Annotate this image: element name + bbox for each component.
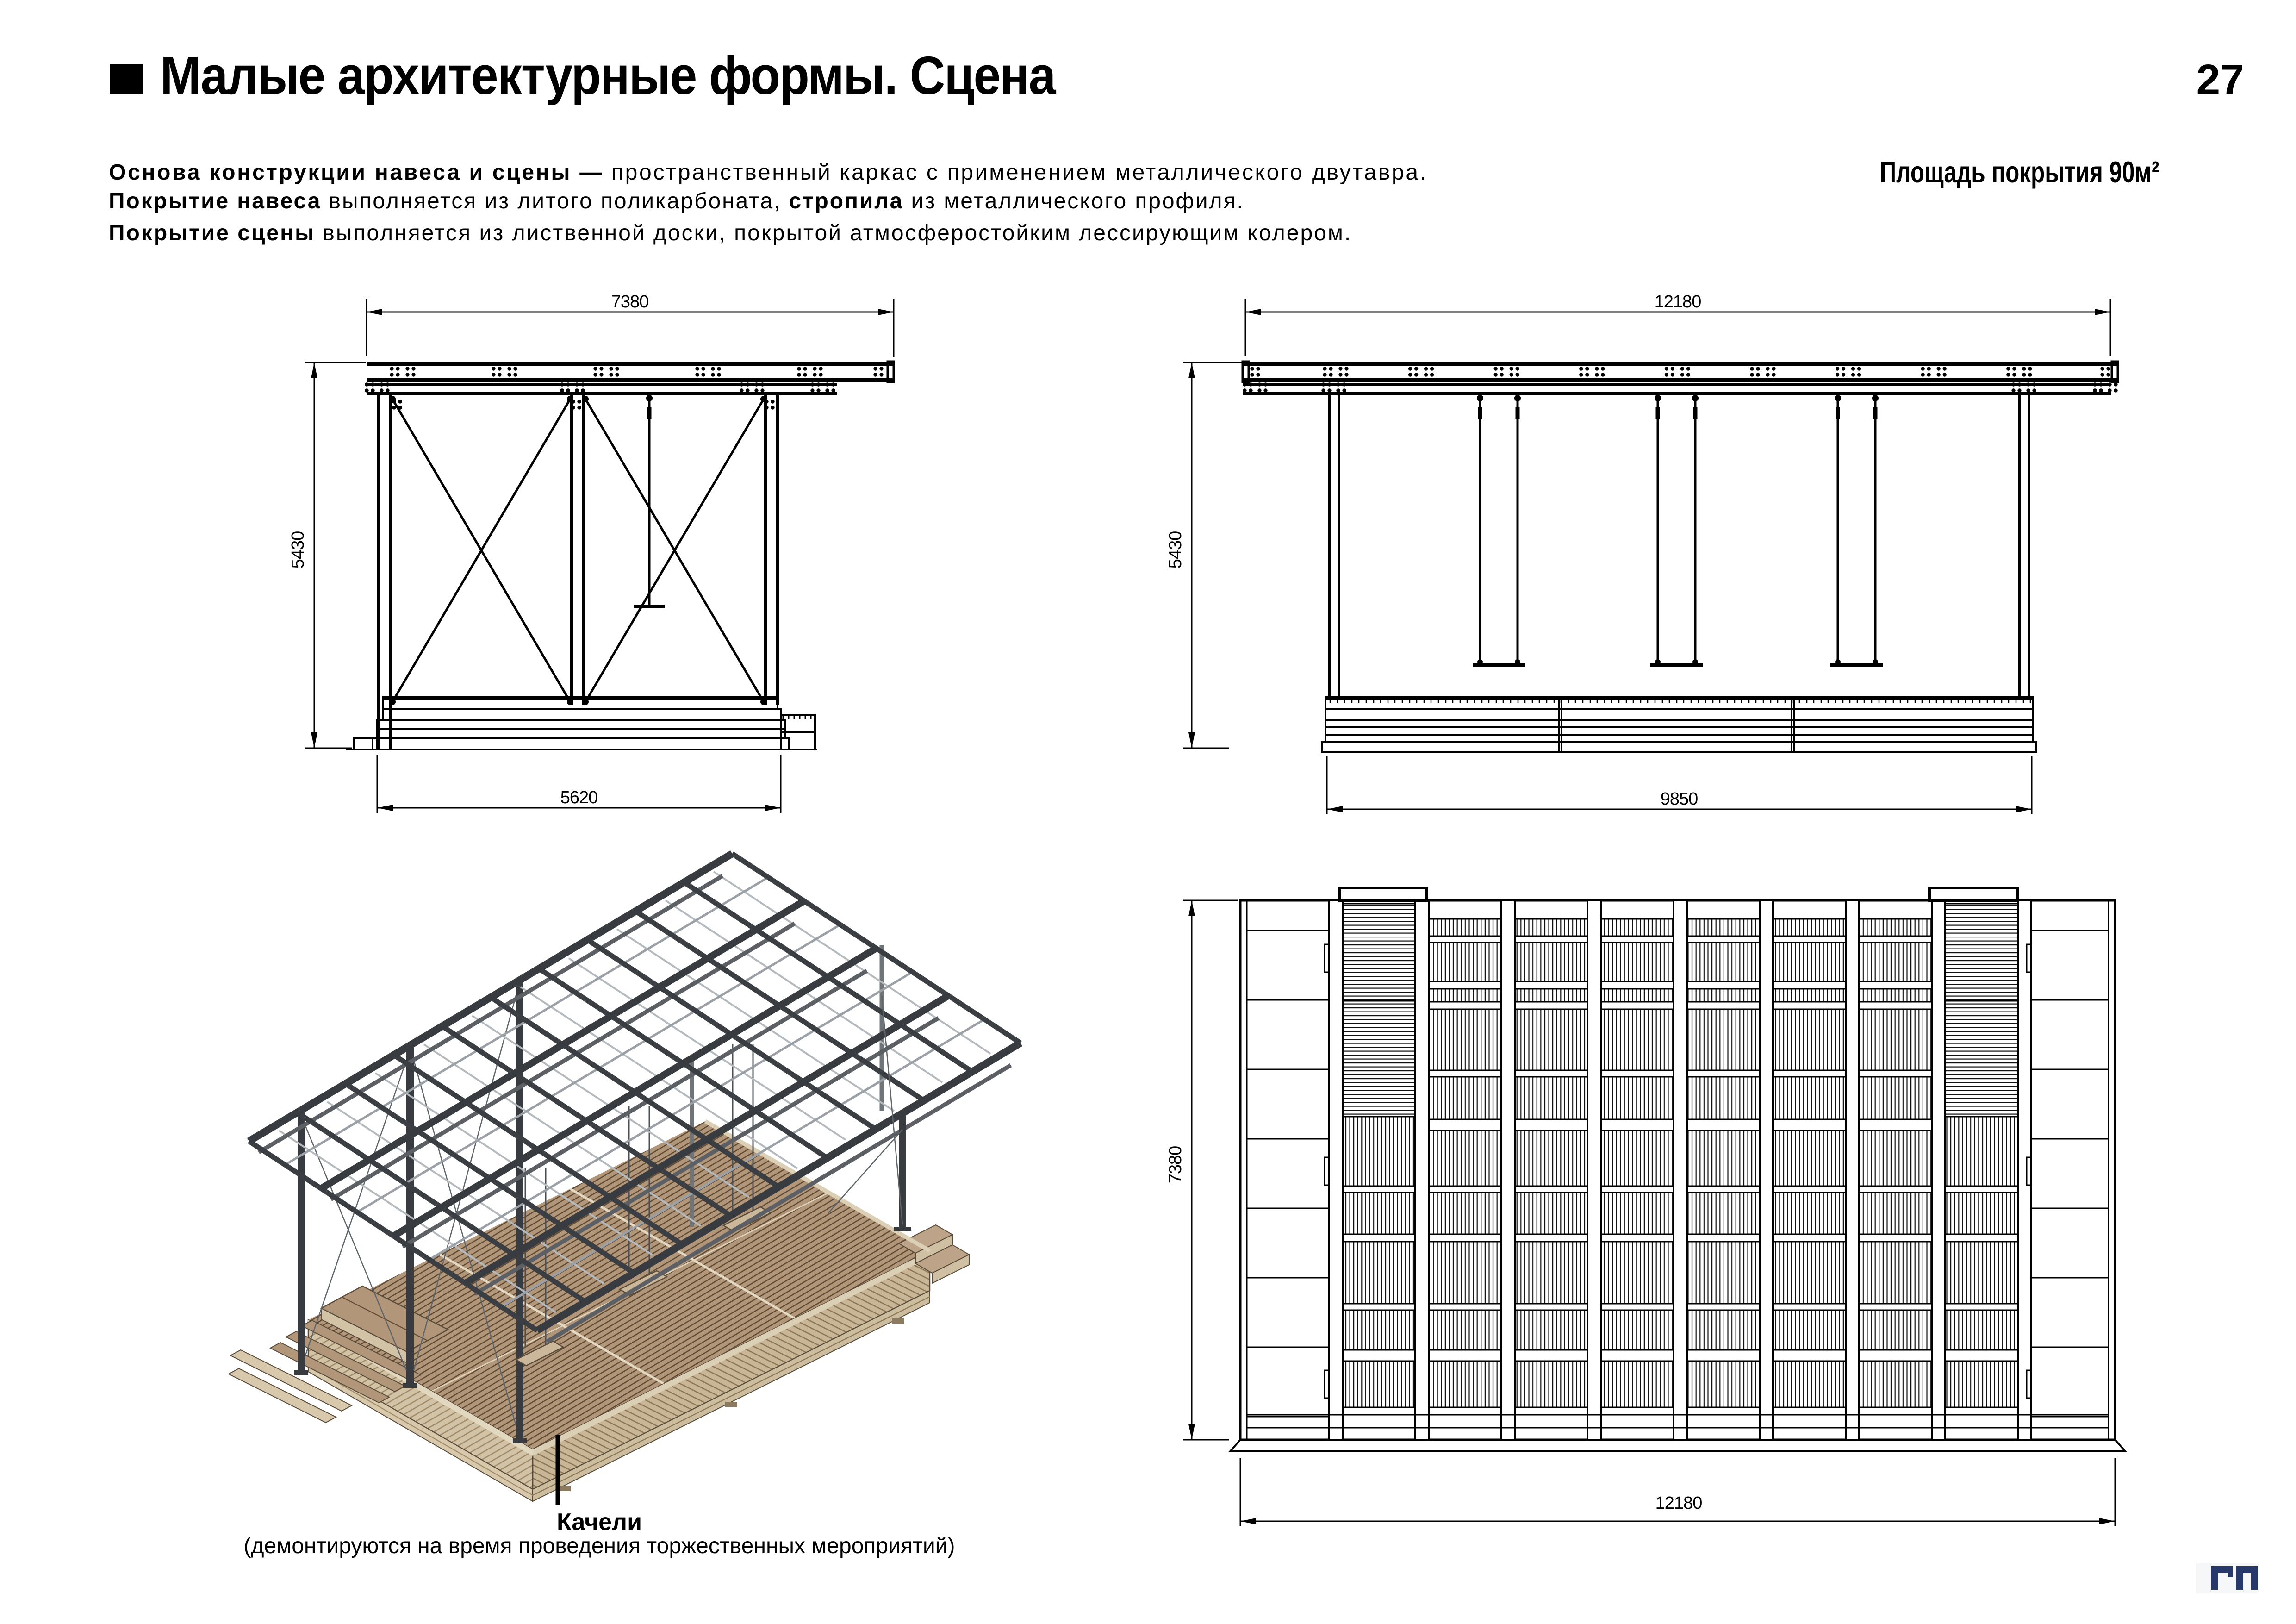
svg-text:12180: 12180 — [1655, 1493, 1702, 1513]
svg-text:7380: 7380 — [1166, 1146, 1185, 1184]
